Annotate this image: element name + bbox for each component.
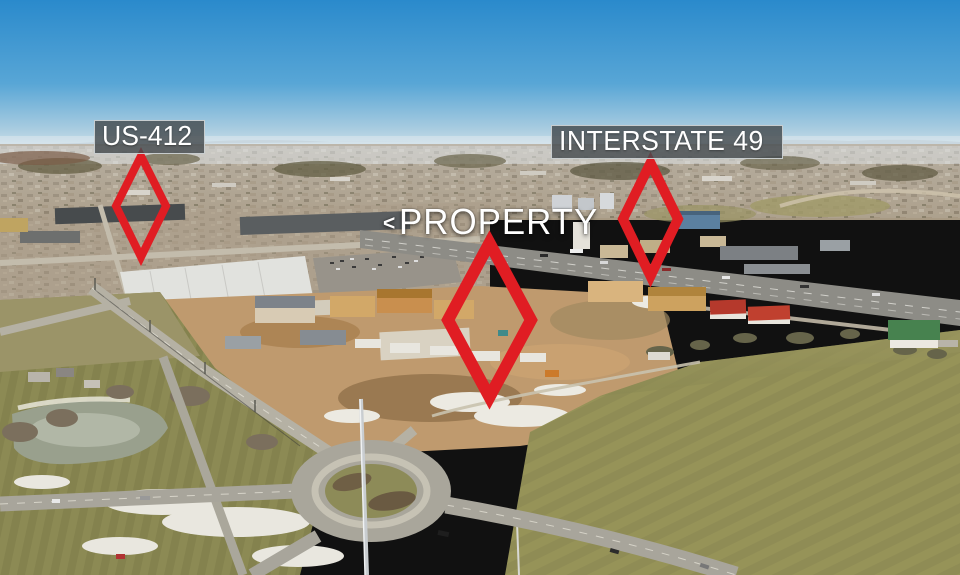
excavator bbox=[545, 370, 559, 377]
red-truck bbox=[116, 554, 125, 559]
us412-label: US-412 bbox=[94, 120, 205, 154]
property-label-text: PROPERTY bbox=[399, 201, 598, 243]
roundabout bbox=[291, 440, 451, 542]
red-roof-barns bbox=[710, 299, 790, 324]
chevron-mark: < bbox=[383, 212, 396, 236]
white-trailer bbox=[648, 352, 670, 360]
interstate49-label: INTERSTATE 49 bbox=[551, 125, 783, 159]
aerial-photo: US-412 INTERSTATE 49 < PROPERTY bbox=[0, 0, 960, 575]
aerial-scene bbox=[0, 0, 960, 575]
interstate49-label-text: INTERSTATE 49 bbox=[559, 126, 764, 155]
us412-label-text: US-412 bbox=[102, 121, 192, 150]
property-label: < PROPERTY bbox=[383, 201, 605, 243]
